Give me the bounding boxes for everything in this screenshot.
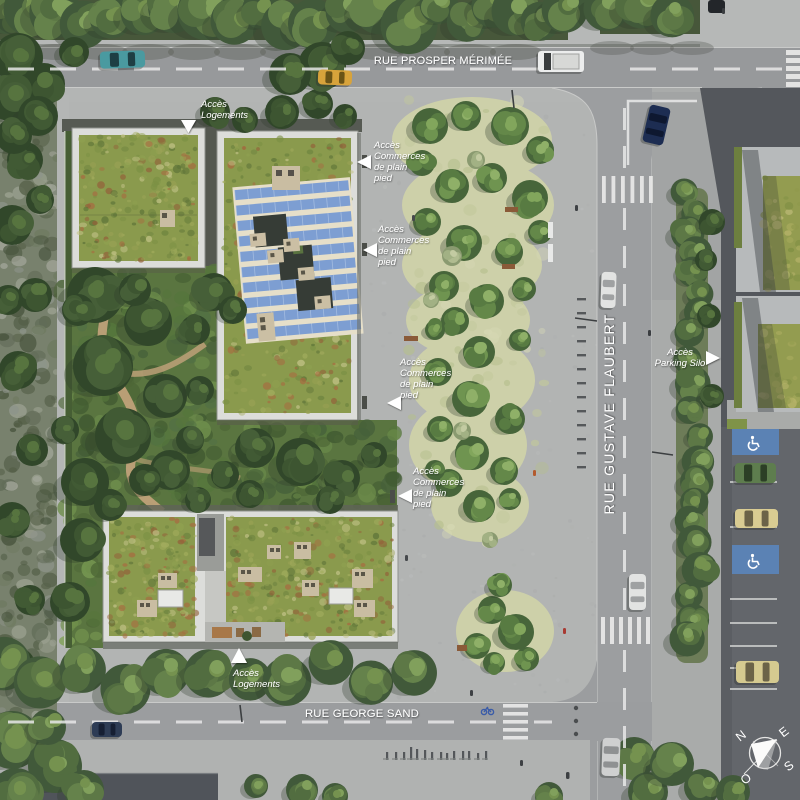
svg-text:pied: pied (373, 173, 393, 184)
svg-text:de plain: de plain (413, 488, 446, 499)
svg-text:de plain: de plain (378, 246, 411, 257)
svg-text:de plain: de plain (374, 162, 407, 173)
svg-text:Accès: Accès (412, 466, 439, 477)
svg-text:Commerces: Commerces (413, 477, 464, 488)
svg-text:pied: pied (399, 390, 419, 401)
svg-text:pied: pied (377, 257, 397, 268)
svg-text:de plain: de plain (400, 379, 433, 390)
svg-text:Commerces: Commerces (378, 235, 429, 246)
svg-text:Logements: Logements (201, 110, 248, 121)
svg-text:RUE GUSTAVE FLAUBERT: RUE GUSTAVE FLAUBERT (601, 313, 617, 514)
svg-text:Parking Silo: Parking Silo (655, 358, 706, 369)
svg-text:Accès: Accès (200, 99, 227, 110)
svg-text:RUE GEORGE SAND: RUE GEORGE SAND (305, 708, 419, 720)
svg-text:Logements: Logements (233, 679, 280, 690)
svg-text:pied: pied (412, 499, 432, 510)
svg-text:Accès: Accès (373, 140, 400, 151)
svg-text:Accès: Accès (399, 357, 426, 368)
svg-text:Commerces: Commerces (374, 151, 425, 162)
svg-text:Accès: Accès (232, 668, 259, 679)
svg-text:Accès: Accès (377, 224, 404, 235)
svg-text:Accès: Accès (666, 347, 693, 358)
svg-text:Commerces: Commerces (400, 368, 451, 379)
svg-text:RUE PROSPER MÉRIMÉE: RUE PROSPER MÉRIMÉE (374, 54, 512, 67)
